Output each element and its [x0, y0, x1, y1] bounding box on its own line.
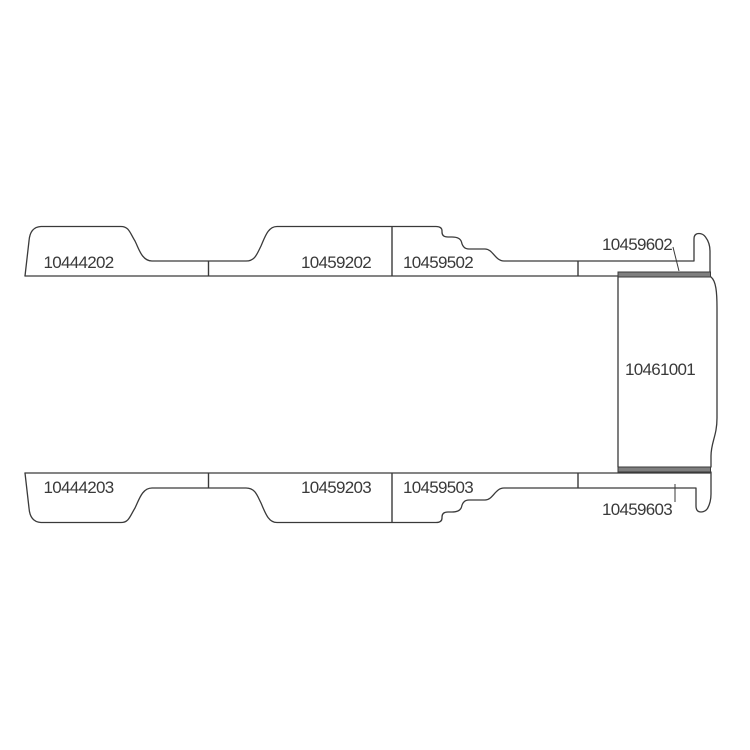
part-label-bottom-middle: 10459203	[301, 478, 371, 497]
part-label-bottom-right: 10459503	[403, 478, 473, 497]
top-sill-band	[618, 272, 711, 277]
rear-panel-right-edge	[711, 277, 717, 467]
part-label-bottom-sill: 10459603	[602, 500, 672, 519]
part-label-top-right: 10459502	[403, 253, 473, 272]
diagram-canvas: 10444202 10459202 10459502 10459602 1046…	[0, 0, 750, 750]
top-sill-leader-line	[673, 247, 679, 271]
part-label-top-left: 10444202	[43, 253, 113, 272]
bottom-sill-band	[618, 467, 711, 472]
parts-diagram-svg: 10444202 10459202 10459502 10459602 1046…	[0, 0, 750, 750]
part-label-top-sill: 10459602	[602, 235, 672, 254]
part-label-rear-panel: 10461001	[625, 360, 695, 379]
part-label-bottom-left: 10444203	[43, 478, 113, 497]
part-label-top-middle: 10459202	[301, 253, 371, 272]
